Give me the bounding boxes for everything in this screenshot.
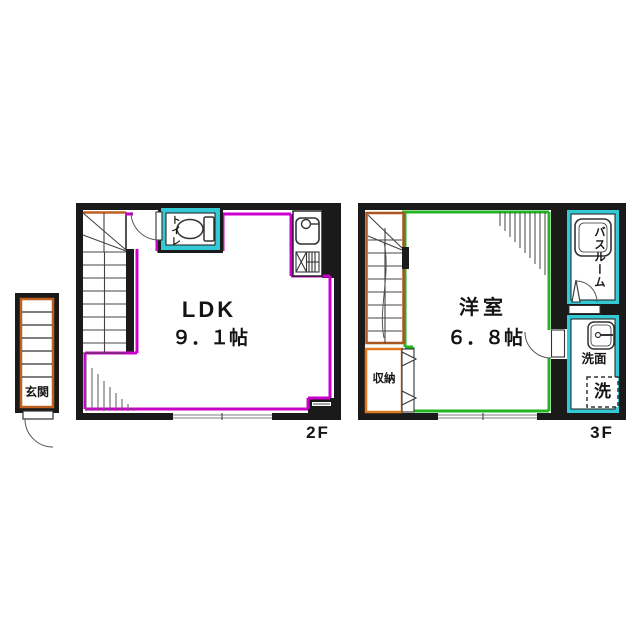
yoshitsu-room-name: 洋室	[423, 297, 543, 320]
ldk-room-size: ９．１帖	[130, 328, 290, 350]
entrance-label: 玄関	[21, 386, 53, 400]
floorplan-drawing	[0, 0, 640, 639]
floorplan-page: 玄関 LDK ９．１帖 トイレ 2F 洋室 ６．８帖 バスルーム 洗面 洗 収納…	[0, 0, 640, 639]
floor2-label: 2F	[298, 423, 338, 443]
ldk-door-leaf	[156, 212, 162, 240]
kitchen-counter	[293, 211, 322, 276]
toilet-icon	[177, 217, 214, 241]
toilet-label: トイレ	[165, 215, 179, 249]
washroom-label: 洗面	[572, 352, 616, 366]
washer-label: 洗	[587, 382, 618, 402]
entrance-door-swing-arc	[25, 419, 53, 447]
floor3-label: 3F	[582, 423, 622, 443]
ldk-room-name: LDK	[149, 297, 269, 322]
storage-label: 収納	[366, 373, 402, 386]
washbasin-icon	[588, 322, 614, 349]
bathroom-label: バスルーム	[590, 226, 604, 306]
entrance-strip	[15, 293, 59, 447]
kitchen-sink-icon	[296, 218, 319, 244]
floor3-stairs	[367, 213, 404, 343]
floor2-window	[173, 413, 272, 420]
yoshitsu-room-size: ６．８帖	[405, 328, 565, 350]
entrance-door-leaf	[23, 411, 53, 419]
floor3-window	[438, 413, 537, 420]
